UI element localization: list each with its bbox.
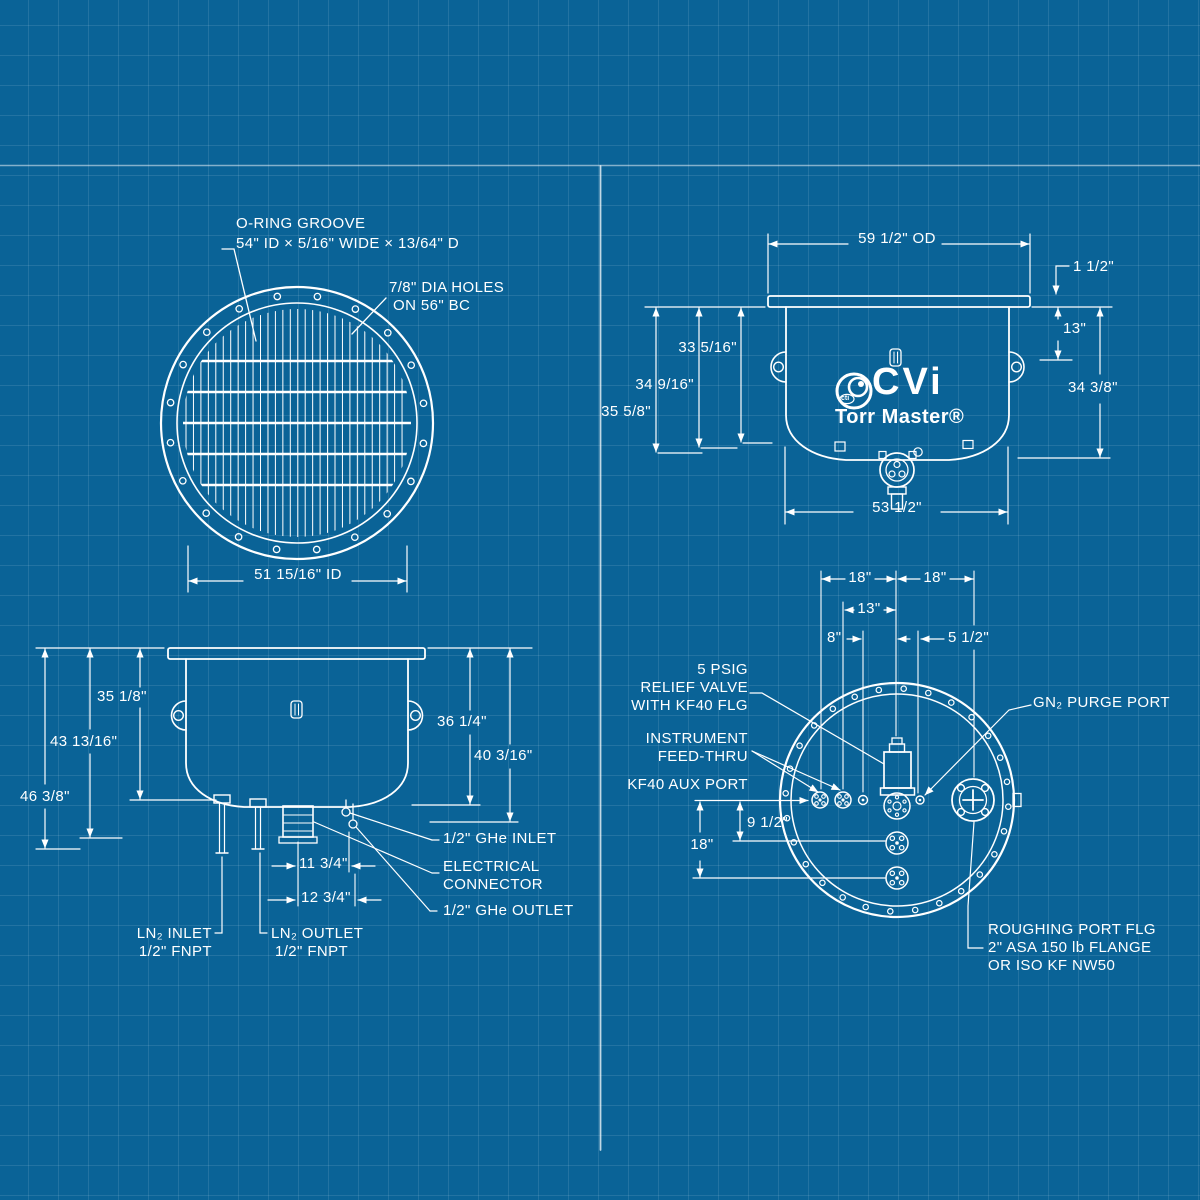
cti-emblem-text: cti	[841, 395, 849, 402]
vertical-offset-dim: 9 1/2"	[747, 814, 788, 831]
relief-valve-label-line1: 5 PSIG	[616, 661, 748, 678]
bottom-view-dimensions	[693, 571, 974, 878]
oring-groove-label-line1: O-RING GROOVE	[236, 215, 365, 232]
vent-mark	[291, 701, 302, 718]
aux-port-offset-dim: 8"	[827, 629, 841, 646]
inner-depth-dim: 33 5/16"	[667, 339, 737, 356]
outer-diameter-dim: 59 1/2" OD	[849, 230, 945, 247]
blueprint-linework	[0, 0, 1200, 1200]
blueprint-canvas: O-RING GROOVE 54" ID × 5/16" WIDE × 13/6…	[0, 0, 1200, 1200]
roughing-label-line3: OR ISO KF NW50	[988, 957, 1115, 974]
outer-depth-dim: 35 5/8"	[588, 403, 651, 420]
flange-lip-dim: 1 1/2"	[1073, 258, 1114, 275]
depth-dim-b: 43 13/16"	[50, 733, 117, 750]
purge-port-offset-dim: 5 1/2"	[948, 629, 989, 646]
oring-groove-label-line2: 54" ID × 5/16" WIDE × 13/64" D	[236, 235, 459, 252]
instrument-label-line1: INSTRUMENT	[616, 730, 748, 747]
bolt-holes-label-line2: ON 56" BC	[393, 297, 470, 314]
instrument-feedthru-ports	[812, 792, 851, 808]
torr-master-logo-text: Torr Master®	[835, 406, 964, 429]
baffle-louvers	[176, 306, 418, 540]
relief-valve-label-line2: RELIEF VALVE	[616, 679, 748, 696]
bolt-holes-label-line1: 7/8" DIA HOLES	[389, 279, 504, 296]
cvi-logo-text: CVi	[872, 361, 944, 404]
ln2-outlet-label-line1: LN₂ OUTLET	[271, 925, 363, 942]
right-radius-dim: 18"	[918, 569, 952, 586]
electrical-connector	[279, 806, 317, 843]
ln2-inlet-label-line2: 1/2" FNPT	[122, 943, 212, 960]
offset-dim-a: 11 3/4"	[299, 855, 348, 872]
section-dividers	[0, 166, 1200, 1151]
ln2-outlet-label-line2: 1/2" FNPT	[275, 943, 348, 960]
electrical-label-line2: CONNECTOR	[443, 876, 543, 893]
aux-port-label: KF40 AUX PORT	[616, 776, 748, 793]
depth-dim-a: 35 1/8"	[97, 688, 147, 705]
gn2-purge-label: GN₂ PURGE PORT	[1033, 694, 1170, 711]
depth-dim-d: 36 1/4"	[437, 713, 487, 730]
depth-dim-c: 46 3/8"	[20, 788, 70, 805]
roughing-label-line1: ROUGHING PORT FLG	[988, 921, 1156, 938]
ghe-inlet-label: 1/2" GHe INLET	[443, 830, 556, 847]
offset-dim-b: 12 3/4"	[301, 889, 351, 906]
lower-port-offset-dim: 18"	[684, 836, 720, 853]
instrument-label-line2: FEED-THRU	[616, 748, 748, 765]
left-radius-dim: 18"	[843, 569, 877, 586]
mid-depth-dim: 34 9/16"	[618, 376, 694, 393]
relief-valve	[881, 738, 915, 819]
ln2-inlet-label-line1: LN₂ INLET	[122, 925, 212, 942]
depth-dim-e: 40 3/16"	[474, 747, 533, 764]
port-b-offset-dim: 13"	[852, 600, 886, 617]
body-width-dim: 53 1/2"	[857, 499, 937, 516]
electrical-label-line1: ELECTRICAL	[443, 858, 540, 875]
cvi-logo-emblem	[837, 374, 871, 408]
right-height-dim: 34 3/8"	[1068, 379, 1118, 396]
flange-to-lug-dim: 13"	[1063, 320, 1086, 337]
ln2-bottom-ports	[886, 832, 908, 889]
inner-diameter-dim: 51 15/16" ID	[243, 566, 353, 583]
ghe-outlet-label: 1/2" GHe OUTLET	[443, 902, 574, 919]
relief-valve-label-line3: WITH KF40 FLG	[616, 697, 748, 714]
roughing-label-line2: 2" ASA 150 lb FLANGE	[988, 939, 1151, 956]
